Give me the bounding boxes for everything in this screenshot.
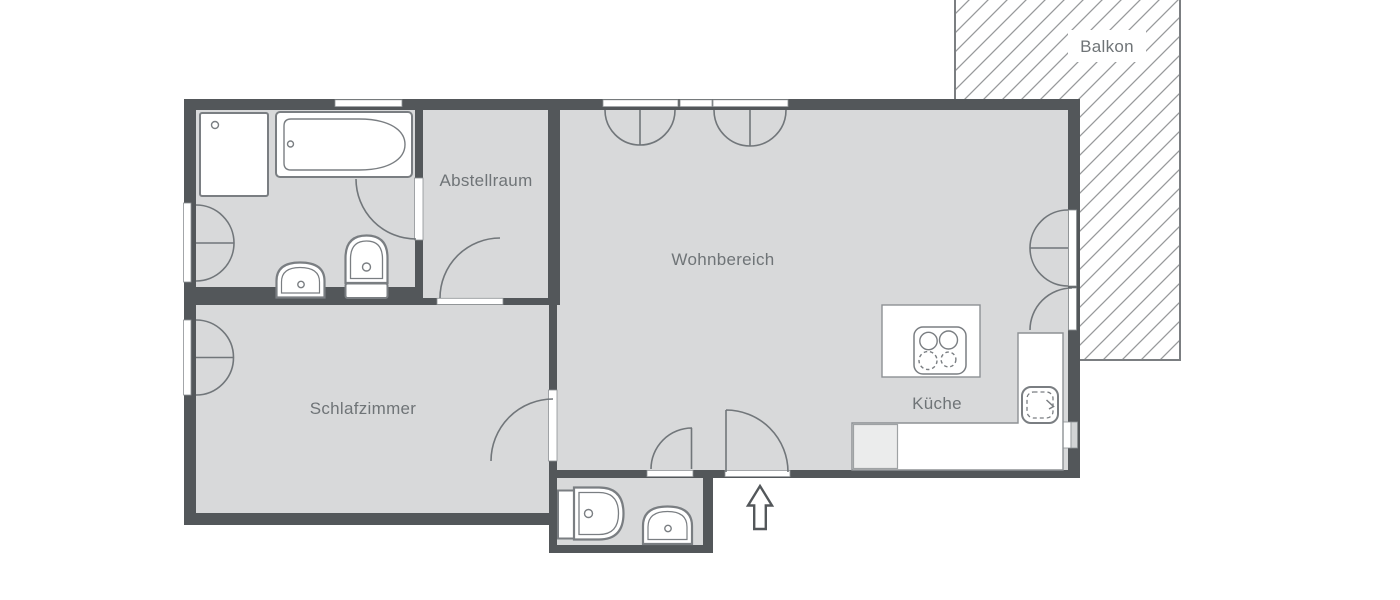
window-kitchen-right [1063,422,1071,448]
window-kitchen-right-outer [1071,422,1078,448]
window-bathroom-left [184,203,192,282]
window-bathroom-top [335,100,402,107]
storage-floor [415,110,560,305]
floorplan-canvas: Balkon Abstellraum Wohnbereich Schlafzim… [0,0,1400,600]
window-livingroom-top-2 [713,100,788,107]
door-wc-sill [647,470,693,476]
wall-bedroom-bottom [184,513,557,525]
room-label-schlafzimmer: Schlafzimmer [310,399,417,418]
room-label-wohnbereich: Wohnbereich [671,250,774,269]
balcony-single-door-leaf [1069,288,1077,330]
door-bathroom-leaf [415,178,424,240]
kitchen-sink [1022,387,1058,423]
wall-left [184,99,196,525]
room-label-kueche: Küche [912,394,962,413]
floorplan-drawing: Balkon Abstellraum Wohnbereich Schlafzim… [0,0,1400,600]
balcony-double-door-sill [1069,210,1077,286]
shower [200,113,268,196]
window-livingroom-top-1 [603,100,678,107]
washbasin-bathroom [277,263,325,298]
door-bedroom-leaf [549,390,558,461]
stove-4-burners [914,327,966,374]
window-bedroom-left [184,320,192,395]
bathtub [276,112,412,177]
washbasin-wc [643,507,692,545]
door-entrance-sill [725,470,790,476]
wall-wc-right [703,470,713,553]
toilet-bathroom [346,236,388,299]
window-livingroom-top-fixed [680,100,712,107]
room-label-balkon: Balkon [1080,37,1134,56]
wall-living-bottom [549,470,1080,478]
door-storage-sill [437,298,503,304]
wall-storage-living [548,110,560,305]
wall-wc-bottom [549,545,713,553]
toilet-wc [558,488,624,540]
dishwasher [854,425,898,469]
livingroom-floor [557,110,1068,470]
entrance-arrow-icon [748,486,772,529]
room-label-abstellraum: Abstellraum [439,171,532,190]
